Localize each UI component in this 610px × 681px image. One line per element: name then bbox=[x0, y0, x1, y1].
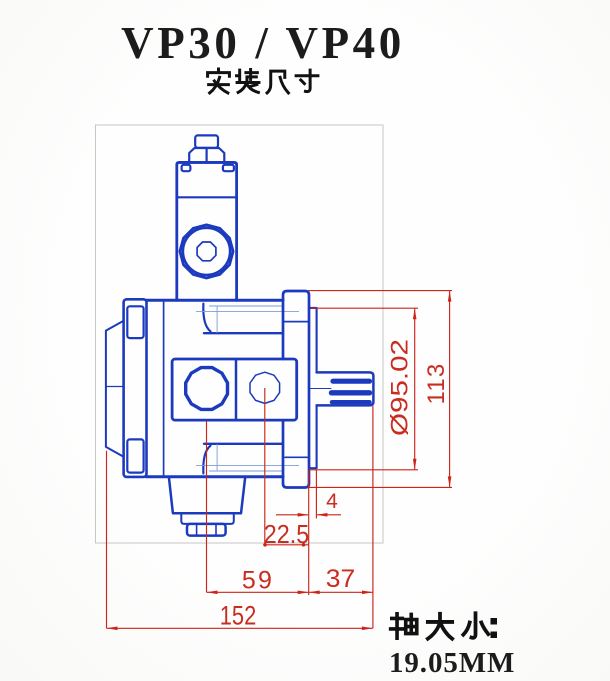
svg-text:VP30 / VP40: VP30 / VP40 bbox=[121, 18, 405, 68]
svg-text:22.5: 22.5 bbox=[264, 521, 310, 549]
svg-text:Ø95.02: Ø95.02 bbox=[387, 339, 414, 436]
svg-text:59: 59 bbox=[242, 567, 274, 595]
svg-text:37: 37 bbox=[326, 565, 356, 593]
svg-text:19.05MM: 19.05MM bbox=[389, 647, 515, 679]
svg-text:4: 4 bbox=[326, 490, 338, 513]
svg-text:113: 113 bbox=[423, 363, 450, 405]
svg-text:152: 152 bbox=[220, 601, 257, 631]
